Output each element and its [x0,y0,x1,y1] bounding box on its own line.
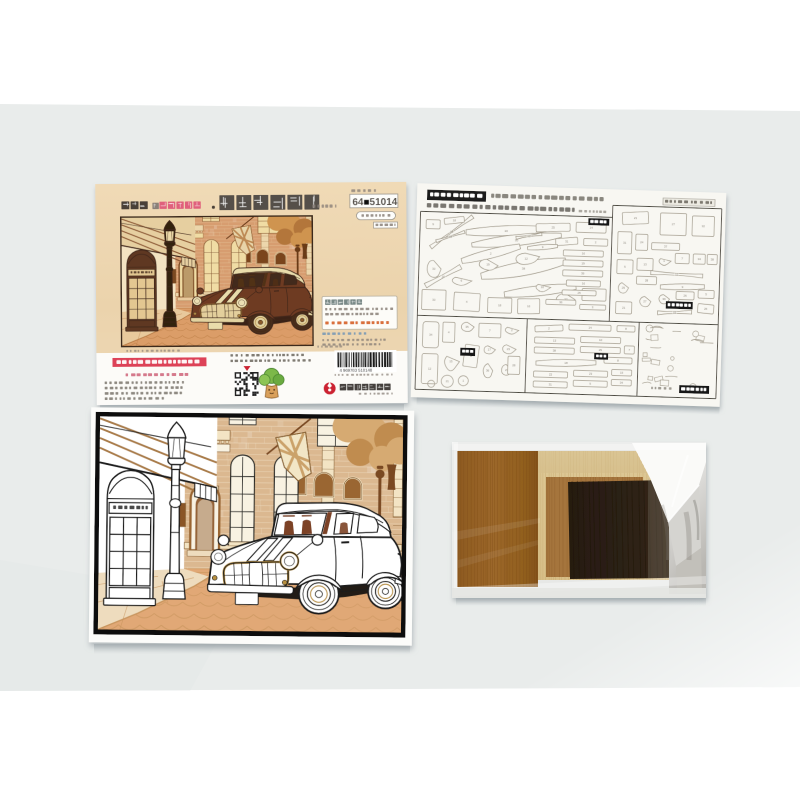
svg-text:18: 18 [498,303,502,307]
svg-text:13: 13 [553,339,557,343]
svg-text:16: 16 [527,304,531,308]
svg-text:16: 16 [441,274,445,278]
svg-text:31: 31 [548,383,552,387]
svg-text:35: 35 [465,325,469,329]
svg-text:21: 21 [634,216,638,220]
svg-text:32: 32 [673,311,677,315]
svg-text:29: 29 [599,348,603,352]
svg-text:12: 12 [675,272,679,276]
svg-text:38: 38 [710,258,714,262]
svg-text:39: 39 [662,297,666,301]
svg-text:23: 23 [589,372,593,376]
svg-text:34: 34 [429,333,433,337]
svg-text:26: 26 [577,291,581,295]
svg-text:33: 33 [432,298,436,302]
svg-text:64■51014: 64■51014 [352,197,397,208]
svg-text:14: 14 [589,226,593,230]
svg-text:31: 31 [565,239,569,243]
svg-text:15: 15 [449,359,453,363]
svg-text:25: 25 [551,226,555,230]
svg-text:27: 27 [643,299,647,303]
svg-text:31: 31 [623,241,627,245]
svg-text:10: 10 [504,229,508,233]
svg-text:29: 29 [622,286,626,290]
svg-text:12: 12 [527,234,531,238]
svg-text:32: 32 [702,224,706,228]
svg-text:14: 14 [588,326,592,330]
svg-text:38: 38 [522,267,526,271]
svg-text:21: 21 [446,379,450,383]
svg-text:13: 13 [643,262,647,266]
svg-text:24: 24 [640,240,644,244]
svg-text:26: 26 [683,294,687,298]
svg-text:36: 36 [486,369,490,373]
svg-text:34: 34 [697,257,701,261]
svg-text:28: 28 [645,279,649,283]
svg-text:28: 28 [512,363,516,367]
svg-text:19: 19 [486,263,490,267]
svg-text:23: 23 [507,347,511,351]
svg-text:18: 18 [453,218,457,222]
svg-text:16: 16 [582,252,586,256]
svg-text:16: 16 [582,282,586,286]
svg-text:37: 37 [664,245,668,249]
svg-text:22: 22 [549,373,553,377]
svg-text:38: 38 [449,235,453,239]
svg-text:16: 16 [541,285,545,289]
svg-text:27: 27 [672,222,676,226]
svg-text:17: 17 [488,348,492,352]
svg-text:33: 33 [432,267,436,271]
svg-text:36: 36 [559,300,563,304]
svg-text:34: 34 [620,381,624,385]
svg-text:38: 38 [450,230,454,234]
svg-text:19: 19 [581,262,585,266]
svg-text:26: 26 [704,307,708,311]
svg-text:10: 10 [599,338,603,342]
svg-text:21: 21 [622,306,626,310]
svg-text:12: 12 [428,367,432,371]
svg-text:4 969783 510148: 4 969783 510148 [340,368,373,373]
svg-text:38: 38 [553,349,557,353]
svg-text:39: 39 [581,271,585,275]
svg-text:18: 18 [564,361,568,365]
svg-text:12: 12 [524,257,528,261]
svg-text:15: 15 [620,371,624,375]
